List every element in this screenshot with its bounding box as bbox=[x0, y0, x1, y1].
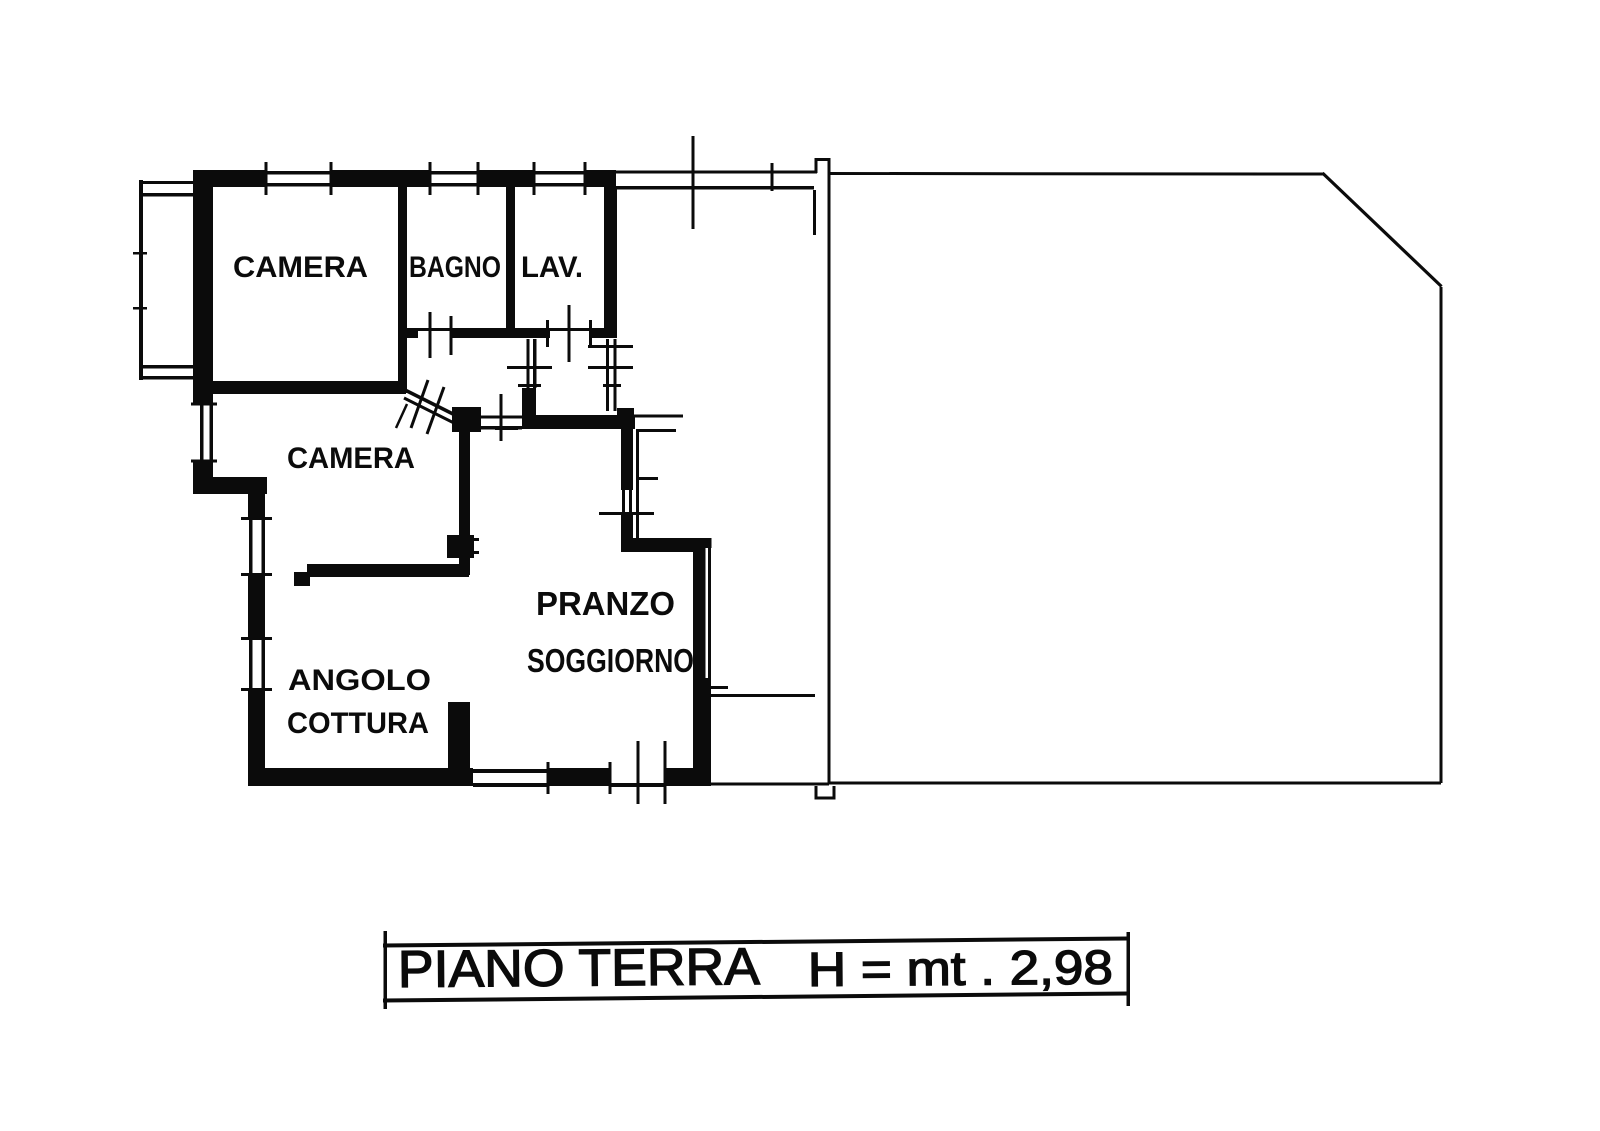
svg-text:BAGNO: BAGNO bbox=[409, 251, 501, 284]
svg-text:PRANZO: PRANZO bbox=[536, 585, 675, 622]
svg-text:PIANO TERRA: PIANO TERRA bbox=[398, 938, 761, 999]
svg-text:SOGGIORNO: SOGGIORNO bbox=[527, 642, 694, 679]
svg-text:COTTURA: COTTURA bbox=[287, 707, 429, 740]
svg-text:ANGOLO: ANGOLO bbox=[288, 664, 431, 697]
svg-text:CAMERA: CAMERA bbox=[233, 251, 368, 284]
svg-text:H = mt . 2,98: H = mt . 2,98 bbox=[808, 942, 1113, 997]
svg-text:LAV.: LAV. bbox=[521, 251, 583, 284]
svg-text:CAMERA: CAMERA bbox=[287, 442, 415, 475]
